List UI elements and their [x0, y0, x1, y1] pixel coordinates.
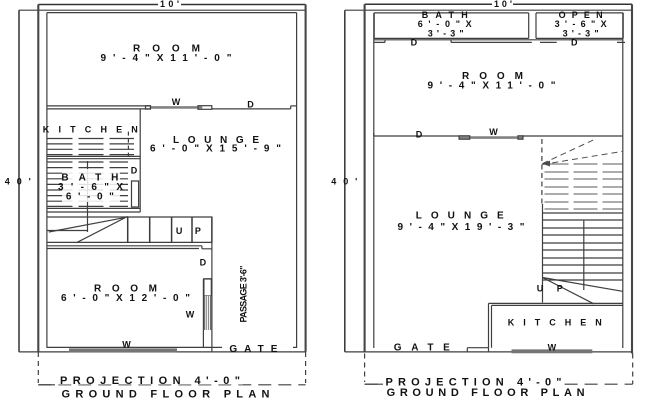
svg-text:W: W: [122, 340, 131, 350]
svg-text:10': 10': [494, 0, 512, 9]
svg-text:PASSAGE 3'-6": PASSAGE 3'-6": [239, 266, 249, 323]
svg-text:D: D: [416, 129, 423, 139]
svg-text:W: W: [186, 310, 195, 320]
svg-text:D: D: [411, 37, 418, 47]
svg-text:W: W: [548, 342, 557, 352]
svg-text:W: W: [172, 97, 181, 107]
svg-text:D: D: [571, 37, 578, 47]
svg-text:D: D: [200, 257, 207, 267]
svg-text:D: D: [131, 166, 138, 176]
svg-text:GROUND FLOOR PLAN: GROUND FLOOR PLAN: [62, 389, 270, 401]
svg-text:W: W: [489, 127, 498, 137]
svg-text:D: D: [247, 100, 254, 110]
svg-text:GROUND FLOOR PLAN: GROUND FLOOR PLAN: [387, 387, 585, 399]
svg-text:10': 10': [160, 0, 179, 9]
